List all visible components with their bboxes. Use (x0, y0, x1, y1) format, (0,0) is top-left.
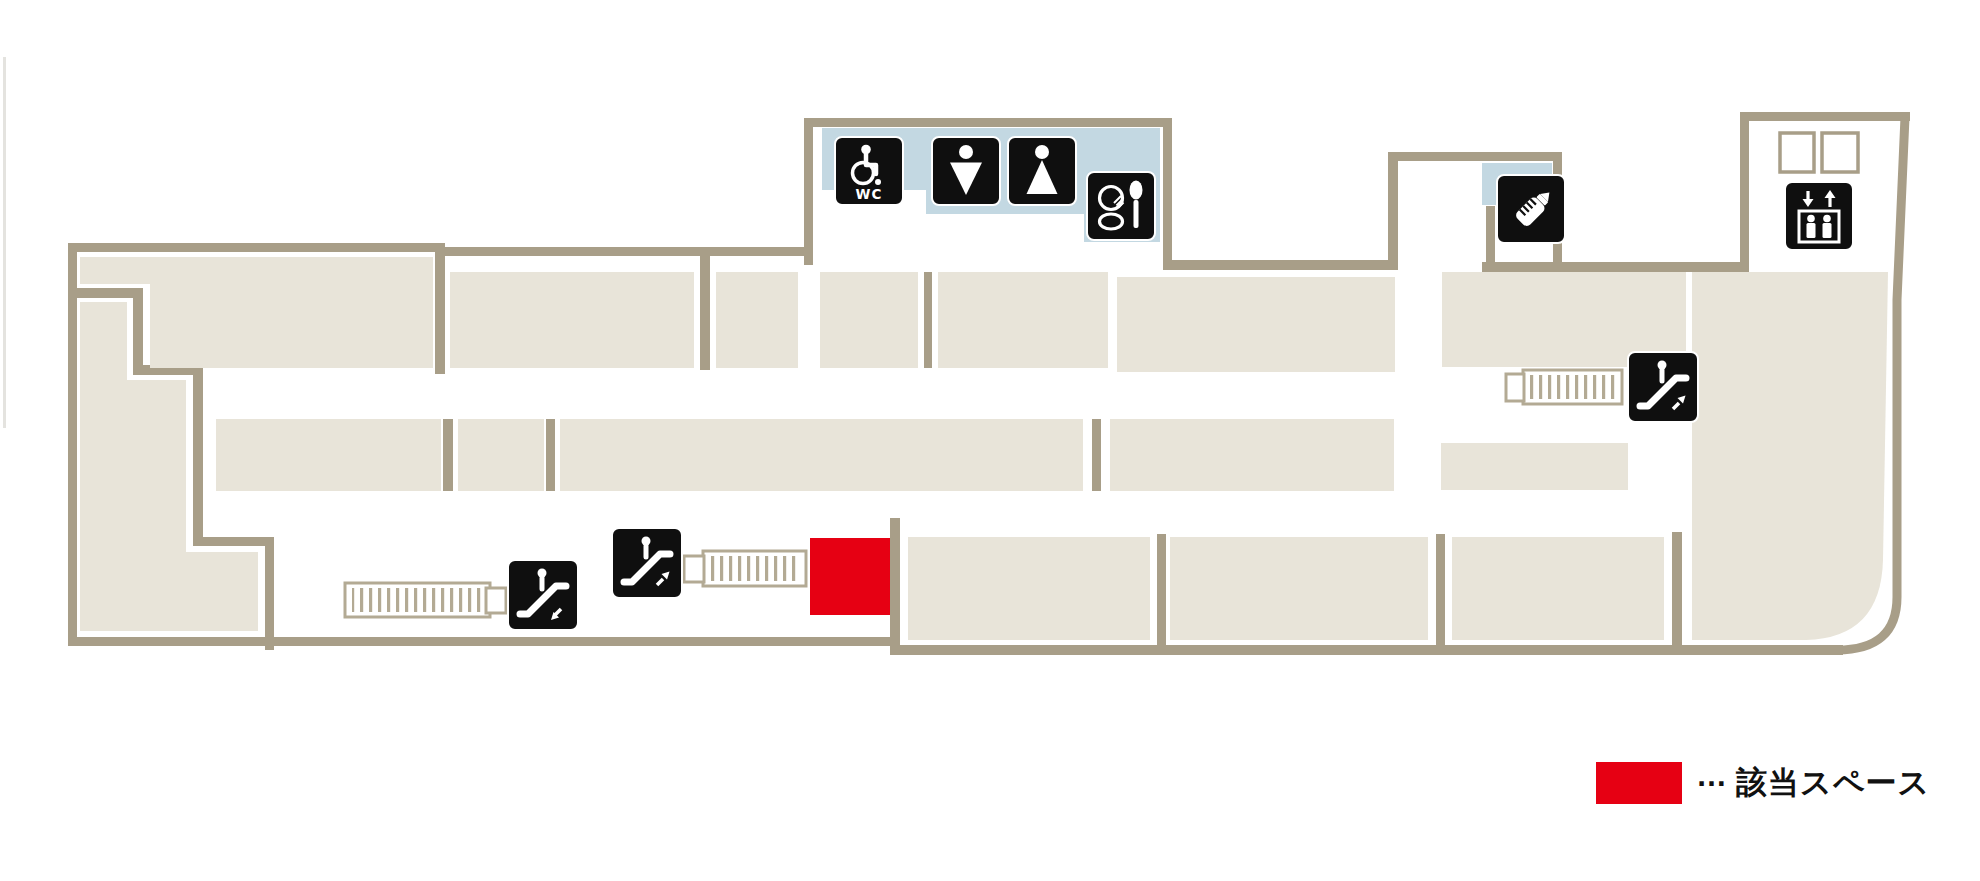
legend-label: …該当スペース (1696, 762, 1930, 804)
store-block (716, 272, 798, 368)
wall-segment (1486, 206, 1495, 262)
escalator-steps (1530, 375, 1616, 399)
woman-icon (1008, 137, 1076, 205)
escalator-steps (352, 588, 484, 612)
divider-wall (1092, 419, 1101, 491)
man-icon (932, 137, 1000, 205)
store-block (450, 272, 694, 368)
icon-background (1785, 182, 1853, 250)
store-block (1170, 537, 1428, 640)
brush-head (1130, 181, 1143, 200)
escalator-up-icon (612, 528, 682, 598)
wall-segment (1163, 260, 1397, 270)
elevator-icon (1785, 182, 1853, 250)
man-head (959, 145, 973, 159)
escalator-end-cap (486, 588, 506, 613)
store-block (1117, 277, 1395, 372)
wall-segment (133, 288, 143, 375)
divider-wall (1157, 534, 1166, 650)
wc-label: WC (856, 186, 883, 202)
divider-wall (924, 272, 932, 368)
escalator-belt-center (684, 551, 806, 586)
store-block (80, 257, 433, 368)
wall-segment (193, 537, 274, 546)
page-edge-line (3, 57, 6, 428)
escalator-down-icon (508, 560, 578, 630)
wall-segment (68, 243, 445, 252)
wall-segment (1672, 532, 1682, 650)
store-block (458, 419, 544, 491)
store-block (1692, 272, 1888, 640)
escalator-steps (710, 556, 800, 581)
store-block (560, 419, 1083, 491)
wall-segment (890, 518, 900, 655)
store-block (1452, 537, 1664, 640)
passenger-body (1807, 223, 1816, 238)
store-block (1441, 443, 1628, 490)
wall-segment (804, 118, 813, 265)
wheelchair-wc-icon: WC (835, 137, 903, 205)
passenger-body (1823, 223, 1832, 238)
wall-segment (1740, 112, 1749, 272)
brush-handle (1134, 200, 1139, 228)
store-block (938, 272, 1108, 368)
wall-segment (193, 365, 203, 546)
store-block (1110, 419, 1394, 491)
baby-bottle-icon (1497, 175, 1565, 243)
store-block (820, 272, 918, 368)
wall-segment (1388, 152, 1398, 270)
elevator-shaft (1780, 133, 1814, 172)
wall-segment (68, 288, 143, 298)
legend-ellipsis: … (1696, 758, 1728, 794)
escalator-end-cap (684, 556, 704, 582)
divider-wall (700, 256, 710, 370)
cosmetics-icon (1087, 172, 1155, 240)
floor-map: WC (0, 0, 1980, 881)
divider-wall (443, 419, 453, 491)
wall-segment (68, 243, 77, 646)
passenger-head (1823, 215, 1831, 223)
wall-segment (1740, 112, 1910, 121)
escalator-belt-right (1506, 370, 1622, 404)
store-block (216, 419, 441, 491)
wall-segment (1163, 118, 1172, 270)
wall-segment (435, 243, 445, 374)
escalator-up-icon (1628, 352, 1698, 422)
escalator-end-cap (1506, 374, 1524, 401)
wall-segment (437, 247, 808, 256)
legend: …該当スペース (1596, 762, 1930, 804)
target-space-marker (810, 538, 890, 615)
floor-map-page: WC (0, 0, 1980, 881)
legend-target-swatch (1596, 762, 1682, 804)
wall-segment (1388, 152, 1562, 161)
legend-text: 該当スペース (1736, 765, 1930, 800)
wall-segment (893, 645, 1843, 655)
store-block (908, 537, 1150, 640)
escalator-belt-left (345, 583, 506, 617)
wall-segment (1482, 262, 1749, 272)
divider-wall (1436, 534, 1445, 650)
wheelchair-caster (875, 179, 881, 185)
elevator-shaft (1822, 133, 1858, 172)
elevator-shafts (1780, 133, 1858, 172)
wall-segment (804, 118, 1172, 127)
divider-wall (546, 419, 555, 491)
wall-segment (265, 537, 274, 650)
wall-segment (68, 637, 895, 646)
woman-head (1035, 145, 1049, 159)
passenger-head (1807, 215, 1815, 223)
